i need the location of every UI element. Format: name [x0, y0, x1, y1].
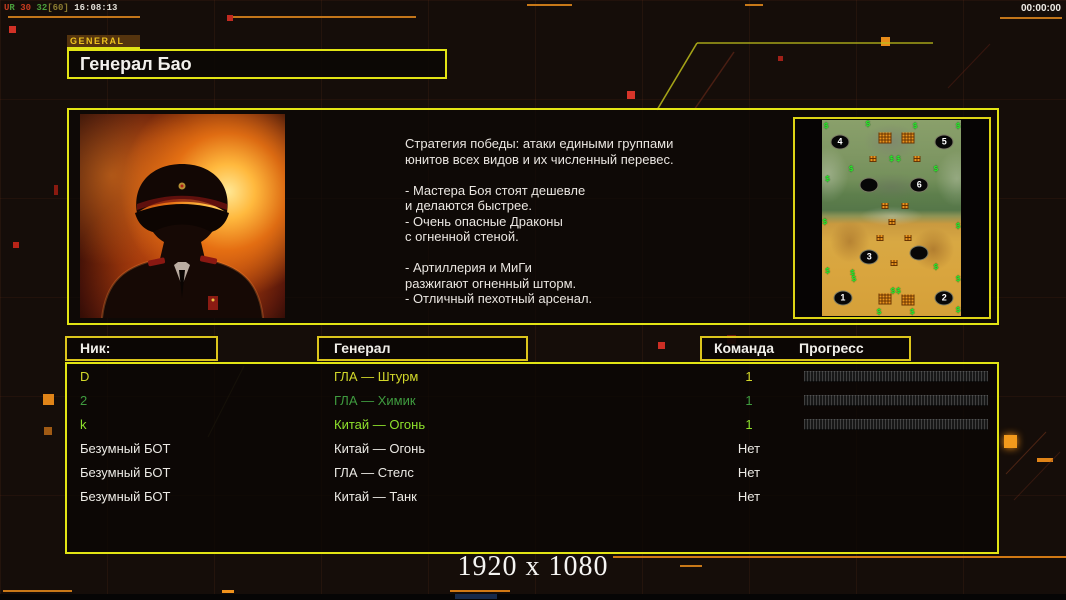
supply-pile-icon: [888, 219, 895, 225]
decor-square: [227, 15, 233, 21]
player-progress-bar: [804, 395, 988, 406]
table-row: Безумный БОТКитай — ОгоньНет: [67, 436, 997, 460]
table-row: 2ГЛА — Химик1: [67, 388, 997, 412]
player-general: Китай — Танк: [334, 489, 417, 504]
resolution-label: 1920 x 1080: [0, 551, 1066, 583]
supply-pile-icon: [879, 294, 892, 305]
decor-line: [3, 590, 72, 592]
column-header-general: Генерал: [317, 336, 528, 361]
decor-square: [627, 91, 635, 99]
money-crate-icon: $: [933, 165, 939, 173]
loading-screen: UR 30 32[60] 16:08:13 00:00:00 GENERAL Г…: [0, 0, 1066, 600]
money-crate-icon: $: [822, 218, 828, 226]
supply-pile-icon: [870, 156, 877, 162]
strategy-line: с огненной стеной.: [405, 229, 674, 245]
supply-pile-icon: [878, 132, 891, 143]
player-general: Китай — Огонь: [334, 441, 425, 456]
money-crate-icon: $: [910, 308, 916, 316]
player-team: Нет: [729, 441, 769, 456]
supply-pile-icon: [877, 235, 884, 241]
supply-pile-icon: [905, 235, 912, 241]
player-nick: D: [80, 369, 89, 384]
start-position-marker: [910, 246, 929, 261]
decor-square: [778, 56, 783, 61]
decor-line: [222, 590, 234, 593]
strategy-line: - Артиллерия и МиГи: [405, 260, 674, 276]
player-general: ГЛА — Стелс: [334, 465, 414, 480]
player-nick: k: [80, 417, 87, 432]
player-team: Нет: [729, 489, 769, 504]
player-general: ГЛА — Штурм: [334, 369, 418, 384]
players-table: DГЛА — Штурм12ГЛА — Химик1kКитай — Огонь…: [65, 362, 999, 554]
player-team: 1: [729, 393, 769, 408]
player-progress-bar: [804, 419, 988, 430]
match-timer: 00:00:00: [1021, 3, 1061, 14]
money-crate-icon: $: [851, 275, 857, 283]
strategy-line: [405, 245, 674, 261]
money-crate-icon: $: [865, 120, 871, 128]
start-position-marker: 6: [910, 177, 929, 192]
table-row: Безумный БОТКитай — ТанкНет: [67, 484, 997, 508]
team-header-label: Команда: [714, 338, 774, 359]
money-crate-icon: $: [889, 155, 895, 163]
table-row: Безумный БОТГЛА — СтелсНет: [67, 460, 997, 484]
player-team: Нет: [729, 465, 769, 480]
money-crate-icon: $: [955, 306, 961, 314]
supply-pile-icon: [902, 132, 915, 143]
decor-line: [233, 16, 416, 18]
stat-part: [60]: [47, 3, 69, 13]
strategy-line: разжигают огненный шторм.: [405, 276, 674, 292]
supply-pile-icon: [913, 156, 920, 162]
money-crate-icon: $: [896, 287, 902, 295]
supply-pile-icon: [902, 203, 909, 209]
money-crate-icon: $: [955, 122, 961, 130]
start-position-marker: 4: [831, 134, 850, 149]
decor-square: [44, 427, 52, 435]
start-position-marker: [860, 177, 879, 192]
decor-line: [450, 590, 510, 592]
money-crate-icon: $: [933, 263, 939, 271]
start-position-marker: 5: [935, 134, 954, 149]
stat-part: 16:08:13: [69, 3, 118, 13]
player-general: ГЛА — Химик: [334, 393, 416, 408]
money-crate-icon: $: [848, 165, 854, 173]
bottom-bar: [0, 594, 1066, 600]
decor-square: [54, 185, 58, 195]
minimap: $$$$$$$$$$$$$$$$$$$$$456312: [793, 117, 991, 319]
decor-square: [1037, 458, 1053, 462]
player-nick: Безумный БОТ: [80, 489, 170, 504]
table-row: kКитай — Огонь1: [67, 412, 997, 436]
stat-part: 30: [15, 3, 37, 13]
decor-line: [745, 4, 763, 6]
money-crate-icon: $: [955, 275, 961, 283]
player-progress-bar: [804, 371, 988, 382]
start-position-marker: 2: [935, 291, 954, 306]
minimap-terrain: $$$$$$$$$$$$$$$$$$$$$456312: [822, 120, 961, 316]
strategy-line: юнитов всех видов и их численный перевес…: [405, 152, 674, 168]
decor-square: [658, 342, 665, 349]
table-row: DГЛА — Штурм1: [67, 364, 997, 388]
decor-square: [9, 26, 16, 33]
decor-square: [1004, 435, 1017, 448]
money-crate-icon: $: [896, 155, 902, 163]
column-header-team-progress: Команда Прогресс: [700, 336, 911, 361]
decor-line: [527, 4, 572, 6]
start-position-marker: 1: [833, 291, 852, 306]
general-portrait: [80, 114, 285, 318]
progress-header-label: Прогресс: [799, 338, 864, 359]
decor-line: [8, 16, 140, 18]
decor-square: [13, 242, 19, 248]
money-crate-icon: $: [823, 122, 829, 130]
decor-line: [1000, 17, 1062, 19]
gentool-stats: UR 30 32[60] 16:08:13: [4, 3, 117, 13]
column-header-nick: Ник:: [65, 336, 218, 361]
strategy-line: и делаются быстрее.: [405, 198, 674, 214]
player-nick: Безумный БОТ: [80, 441, 170, 456]
supply-pile-icon: [881, 203, 888, 209]
money-crate-icon: $: [912, 122, 918, 130]
general-title-box: Генерал Бао: [67, 49, 447, 79]
page-title: Генерал Бао: [80, 54, 192, 74]
general-silhouette: [80, 114, 285, 318]
decor-square: [43, 394, 54, 405]
stat-part: 32: [36, 3, 47, 13]
decor-navy-bar: [455, 594, 497, 599]
supply-pile-icon: [891, 260, 898, 266]
player-team: 1: [729, 417, 769, 432]
start-position-marker: 3: [860, 250, 879, 265]
player-general: Китай — Огонь: [334, 417, 425, 432]
general-tab: GENERAL: [67, 35, 140, 49]
player-nick: 2: [80, 393, 87, 408]
money-crate-icon: $: [825, 175, 831, 183]
strategy-line: - Мастера Боя стоят дешевле: [405, 183, 674, 199]
nick-header-label: Ник:: [80, 338, 110, 359]
decor-square: [881, 37, 890, 46]
strategy-line: - Очень опасные Драконы: [405, 214, 674, 230]
strategy-text: Стратегия победы: атаки едиными группами…: [405, 136, 674, 307]
strategy-line: - Отличный пехотный арсенал.: [405, 291, 674, 307]
strategy-line: [405, 167, 674, 183]
money-crate-icon: $: [955, 222, 961, 230]
player-team: 1: [729, 369, 769, 384]
supply-pile-icon: [902, 295, 915, 306]
money-crate-icon: $: [876, 308, 882, 316]
strategy-line: Стратегия победы: атаки едиными группами: [405, 136, 674, 152]
general-info-panel: Стратегия победы: атаки едиными группами…: [67, 108, 999, 325]
general-header-label: Генерал: [334, 338, 391, 359]
player-nick: Безумный БОТ: [80, 465, 170, 480]
money-crate-icon: $: [825, 267, 831, 275]
general-tab-label: GENERAL: [70, 36, 125, 46]
